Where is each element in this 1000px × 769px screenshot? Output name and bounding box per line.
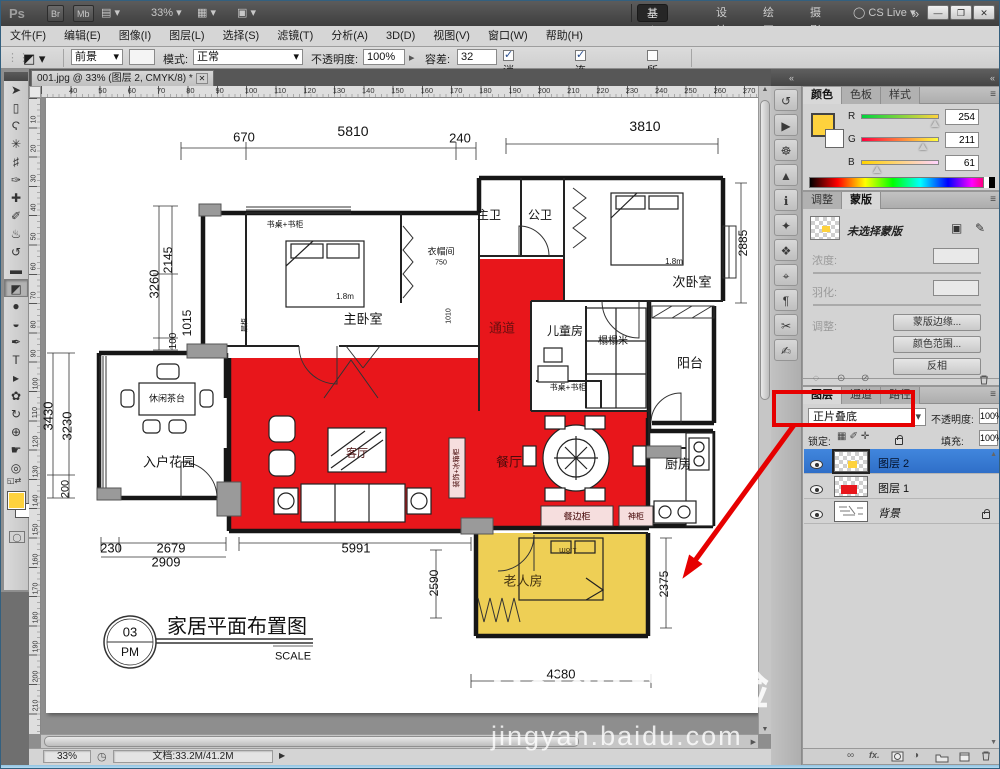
ruler-number: 80 [30,321,37,329]
panel-menu-icon[interactable]: ≡ [990,194,996,205]
opacity-label: 不透明度: [311,51,358,67]
plan-label: 1.8m [665,258,683,266]
masks-panel: 调整蒙版 ≡ 未选择蒙版 ▣ ✎ 浓度: 羽化: 调整: 蒙版边缘... 颜色范… [802,191,1000,386]
horizontal-scrollbar[interactable]: ▶ [41,734,758,748]
visibility-eye-icon[interactable] [810,506,823,524]
b-value-input[interactable]: 61 [945,155,979,171]
scroll-up-icon[interactable]: ▲ [759,86,771,93]
mode-dropdown[interactable]: 正常 ▾ [193,49,303,65]
layer-row-2[interactable]: 图层 2 [804,449,1000,474]
color-panel: 颜色色板样式 ≡ R 254 G 211 B 61 [802,86,1000,191]
menu-item[interactable]: 选择(S) [214,26,269,47]
fill-source-dropdown[interactable]: 前景 ▾ [71,49,123,65]
blur-tool[interactable]: ● [4,297,28,315]
plan-label: 公卫 [528,209,552,221]
app-background [1,592,29,765]
tools-panel: ➤▯Ϛ✳♯✑✚✐♨↺▬◩●◒✒T▸✿↻⊕☛◎ ◱⇄ ◯ [3,71,29,591]
black-swatch[interactable] [989,177,995,188]
tolerance-input[interactable]: 32 [457,49,497,65]
adjustments-panel-icon[interactable]: ✦ [774,214,798,236]
ruler-number: 180 [479,86,492,95]
type-tool[interactable]: T [4,351,28,369]
layer-row-background[interactable]: 背景 [804,499,1000,524]
pen-tool[interactable]: ✒ [4,333,28,351]
fill-label: 填充: [941,433,964,448]
b-channel-label: B [848,157,855,168]
plan-label: 客厅 [346,449,368,460]
r-slider[interactable] [861,114,939,119]
ruler-number: 190 [509,86,522,95]
ruler-left[interactable]: 1020304050607080901001101201301401501601… [29,98,41,734]
plan-label: 5810 [337,124,368,138]
plan-label: 03 [123,626,137,639]
color-panel-tabs: 颜色色板样式 [803,87,1000,104]
layer-thumbnail[interactable] [834,476,868,497]
plan-label: 2145 [162,247,174,274]
density-input[interactable] [933,248,979,264]
status-menu-icon[interactable]: ▶ [279,751,285,760]
ruler-number: 130 [333,86,346,95]
ruler-number: 160 [421,86,434,95]
menu-item[interactable]: 窗口(W) [479,26,537,47]
menu-item[interactable]: 编辑(E) [55,26,110,47]
ruler-number: 190 [32,641,39,653]
add-pixel-mask-icon[interactable]: ▣ [951,221,962,235]
layer-name[interactable]: 背景 [878,505,900,521]
default-colors-icon[interactable]: ◱⇄ [7,476,21,485]
crop-tool[interactable]: ♯ [4,153,28,171]
ruler-number: 180 [32,612,39,624]
b-slider[interactable] [861,160,939,165]
ruler-number: 120 [303,86,316,95]
layer-thumbnail[interactable] [834,451,868,472]
layer-lock-icon [982,506,990,524]
plan-label: 老人房 [503,575,542,588]
plan-label: 2590 [428,570,440,597]
divider [63,49,64,67]
ruler-number: 170 [32,582,39,594]
vertical-scroll-thumb[interactable] [760,100,770,400]
r-value-input[interactable]: 254 [945,109,979,125]
plan-label: 3260 [148,270,161,299]
fill-input[interactable]: 100% [979,430,998,446]
plan-label: 主卫 [477,209,501,221]
panel-tab[interactable]: 蒙版 [842,192,881,209]
info-panel-icon[interactable]: ℹ [774,189,798,211]
foreground-color-swatch[interactable] [7,491,26,510]
lock-label: 锁定: [808,433,831,448]
add-mask-icon[interactable] [891,751,905,763]
ruler-number: 50 [30,233,37,241]
opacity-arrow-icon[interactable]: ▸ [409,51,415,64]
ruler-number: 130 [32,465,39,477]
status-doc-size: 文档:33.2M/41.2M [113,750,273,763]
color-range-button[interactable]: 颜色范围... [893,336,981,353]
mode-label: 模式: [163,51,188,67]
plan-label: 儿童房 [547,325,583,337]
ruler-number: 220 [596,86,609,95]
plan-label: 3230 [61,412,74,441]
eyedropper-tool[interactable]: ✑ [4,171,28,189]
menu-item[interactable]: 分析(A) [322,26,377,47]
styles-panel-icon[interactable]: ❖ [774,239,798,261]
close-button[interactable]: ✕ [973,5,995,20]
workspace-button[interactable]: 基本功能 [637,4,668,22]
panel-tab[interactable]: 颜色 [803,87,842,104]
clone-stamp-tool[interactable]: ♨ [4,225,28,243]
shape-tool[interactable]: ✿ [4,387,28,405]
document-tab-bar: 001.jpg @ 33% (图层 2, CMYK/8) * ✕ [29,69,771,86]
ruler-number: 110 [274,86,286,95]
floor-plan-drawing [41,98,758,734]
plan-label: 厨房 [665,458,691,471]
histogram-panel-icon[interactable]: ▲ [774,164,798,186]
lasso-tool[interactable]: Ϛ [4,117,28,135]
invert-button[interactable]: 反相 [893,358,981,375]
tolerance-label: 容差: [425,51,450,67]
menu-item[interactable]: 滤镜(T) [268,26,322,47]
window-border [1,765,1000,769]
zoom-level-dropdown[interactable]: 33% ▾ [151,5,182,22]
layers-opacity-input[interactable]: 100% [979,408,998,424]
panel-tab[interactable]: 调整 [803,192,842,209]
menu-item[interactable]: 视图(V) [424,26,479,47]
new-layer-icon[interactable] [958,751,971,763]
new-group-icon[interactable] [935,751,949,763]
ruler-number: 40 [30,203,37,211]
ruler-number: 60 [128,86,136,95]
g-slider-marker[interactable] [919,143,927,150]
plan-label: 阳台 [677,357,703,370]
menu-bar: 文件(F)编辑(E)图像(I)图层(L)选择(S)滤镜(T)分析(A)3D(D)… [1,26,1000,47]
clock-icon: ◷ [97,750,107,763]
plan-label: 书桌+书柜 [550,384,587,392]
panel-tab[interactable]: 色板 [842,87,881,104]
brush-tool[interactable]: ✐ [4,207,28,225]
ruler-number: 230 [626,86,639,95]
view-extras-icon[interactable]: ▦ ▾ [197,5,216,22]
dock-header: «« [771,69,1000,86]
panel-scroll-down-icon[interactable]: ▼ [990,739,997,746]
ruler-number: 210 [32,700,39,712]
panel-menu-icon[interactable]: ≡ [990,389,996,400]
ruler-number: 250 [684,86,697,95]
layer-style-icon[interactable]: fx. [869,750,880,760]
workspace-button[interactable]: 摄影 [801,4,830,22]
plan-label: 入户花园 [143,456,195,469]
r-channel-label: R [848,111,855,122]
plan-label: 休闲茶台 [149,395,185,404]
plan-label: 750 [435,260,447,267]
divider [691,49,692,67]
ruler-number: 80 [186,86,194,95]
title-bar: Ps Br Mb ▤ ▾ 33% ▾ ▦ ▾ ▣ ▾ 基本功能设计绘画摄影 » … [1,1,1000,26]
ruler-number: 100 [32,377,39,389]
plan-label: 200 [61,480,72,498]
g-value-input[interactable]: 211 [945,132,979,148]
plan-label: 100 [169,333,179,350]
ruler-number: 90 [216,86,224,95]
vertical-scrollbar[interactable]: ▲▼ [758,86,771,734]
plan-label: 餐厅 [496,456,522,469]
dodge-tool[interactable]: ◒ [4,315,28,333]
ruler-number: 100 [245,86,258,95]
actions-panel-icon[interactable]: ▶ [774,114,798,136]
menu-item[interactable]: 3D(D) [377,26,424,47]
tools-panel-header[interactable] [4,72,28,81]
minimize-button[interactable]: — [927,5,949,20]
ruler-number: 110 [32,407,39,418]
new-adjustment-layer-icon[interactable]: ◑ [913,750,919,761]
layer-name[interactable]: 图层 1 [878,480,909,496]
masks-panel-tabs: 调整蒙版 [803,192,1000,209]
scroll-right-icon[interactable]: ▶ [751,738,756,746]
plan-label: 书桌+书柜 [267,221,304,229]
ruler-number: 40 [69,86,77,95]
ruler-origin[interactable] [29,86,41,98]
load-selection-icon[interactable]: ◌ [813,373,819,384]
visibility-eye-icon[interactable] [810,481,823,499]
scroll-down-icon[interactable]: ▼ [759,726,771,733]
menu-item[interactable]: 图像(I) [110,26,160,47]
mask-edge-button[interactable]: 蒙版边缘... [893,314,981,331]
canvas[interactable]: 6705810240381032602145101510034303230200… [41,98,758,734]
ruler-number: 160 [32,553,39,565]
paint-bucket-icon[interactable]: ◩ ▾ [23,51,45,67]
r-slider-marker[interactable] [931,120,939,127]
ruler-number: 30 [30,174,37,182]
document-status-bar: 33% ◷ 文档:33.2M/41.2M ▶ [29,748,771,765]
plan-label: 次卧室 [672,276,711,289]
plan-label: 240 [449,132,471,145]
plan-label: 2909 [152,556,181,569]
marquee-tool[interactable]: ▯ [4,99,28,117]
g-slider[interactable] [861,137,939,142]
status-zoom-field[interactable]: 33% [43,750,91,763]
apply-mask-icon[interactable]: ⊙ [837,373,845,384]
cs-live-button[interactable]: ◯ CS Live ▾ [853,5,915,22]
path-selection-tool[interactable]: ▸ [4,369,28,387]
plan-label: 5991 [342,542,371,555]
photoshop-window: Ps Br Mb ▤ ▾ 33% ▾ ▦ ▾ ▣ ▾ 基本功能设计绘画摄影 » … [0,0,1000,769]
ruler-number: 260 [714,86,727,95]
layers-footer: ∞ fx. ◑ [803,748,1000,764]
plan-label: 榻榻米 [598,337,628,347]
panel-menu-icon[interactable]: ≡ [990,89,996,100]
plan-label: 通道 [489,322,515,335]
paragraph-panel-icon[interactable]: ¶ [774,289,798,311]
feather-slider[interactable] [813,304,981,306]
layer-thumbnail[interactable] [834,501,868,522]
link-layers-icon[interactable]: ∞ [847,750,854,761]
layers-opacity-label: 不透明度: [931,411,974,426]
feather-label: 羽化: [812,284,837,300]
lock-all-icon[interactable] [895,432,903,450]
background-swatch[interactable] [825,129,844,148]
checkbox-icon [575,50,586,61]
plan-label: 3810 [629,119,660,133]
hand-tool[interactable]: ☛ [4,441,28,459]
ruler-number: 20 [30,145,37,153]
density-label: 浓度: [812,252,837,268]
3d-rotate-tool[interactable]: ↻ [4,405,28,423]
plan-label: 3430 [42,402,55,431]
ruler-number: 240 [655,86,668,95]
eraser-tool[interactable]: ▬ [4,261,28,279]
lock-icons[interactable]: ▦✐✛ [837,431,872,442]
plan-label: 2375 [658,571,670,598]
ruler-number: 120 [32,436,39,448]
ruler-number: 150 [32,524,39,536]
plan-label: 670 [233,131,255,144]
zoom-tool[interactable]: ◎ [4,459,28,477]
ruler-number: 140 [32,495,39,507]
notes-panel-icon[interactable]: ✍ [774,339,798,361]
ruler-number: 200 [538,86,551,95]
layers-panel: 图层通道路径 ≡ 正片叠底▾ 不透明度: 100% 锁定: ▦✐✛ 填充: 10… [802,386,1000,765]
plan-label: 4380 [547,668,576,681]
ruler-number: 170 [450,86,463,95]
history-panel-icon[interactable]: ↺ [774,89,798,111]
plan-label: 餐边柜 [563,513,590,522]
collapse-dock-icon[interactable]: « [789,73,794,83]
annotation-highlight-box [772,390,915,427]
disable-mask-icon[interactable]: ⊘ [861,373,869,384]
ruler-top[interactable]: 4050607080901001101201301401501601701801… [41,86,758,98]
paint-bucket-tool[interactable]: ◩ [4,279,28,297]
tools-list: ➤▯Ϛ✳♯✑✚✐♨↺▬◩●◒✒T▸✿↻⊕☛◎ [4,81,28,477]
layer-row-1[interactable]: 图层 1 [804,474,1000,499]
ps-logo: Ps [9,5,25,22]
tool-presets-panel-icon[interactable]: ✂ [774,314,798,336]
plan-label: 1.8m [559,546,577,554]
options-bar: ⋮⋮ ◩ ▾ 前景 ▾ 模式: 正常 ▾ 不透明度: 100% ▸ 容差: 32… [1,47,1000,69]
density-slider[interactable] [813,272,981,274]
tab-close-icon[interactable]: ✕ [196,73,209,84]
screen-mode-icon[interactable]: ▣ ▾ [237,5,256,22]
menu-item[interactable]: 文件(F) [1,26,55,47]
ruler-number: 90 [30,350,37,358]
workspace-button[interactable]: 绘画 [754,4,783,22]
arrange-documents-icon[interactable]: ▤ ▾ [101,5,120,22]
refine-label: 调整: [812,318,837,334]
mask-status-text: 未选择蒙版 [847,223,902,239]
trash-icon[interactable] [978,374,990,386]
restore-button[interactable]: ❐ [950,5,972,20]
layer-name[interactable]: 图层 2 [878,455,909,471]
checkbox-icon [647,50,658,61]
ruler-number: 270 [743,86,756,95]
visibility-eye-icon[interactable] [810,456,823,474]
pattern-swatch[interactable] [129,49,155,65]
magic-wand-tool[interactable]: ✳ [4,135,28,153]
mask-thumb-content [822,226,830,232]
plan-label: 神柜 [628,513,644,521]
mini-bridge-button[interactable]: Mb [73,5,94,22]
workspace-button[interactable]: 设计 [707,4,736,22]
plan-label: 装饰+冰箱柜 [454,448,461,487]
mask-thumbnail [810,216,840,240]
ruler-number: 200 [32,670,39,682]
quick-mask-button[interactable]: ◯ [9,531,25,543]
history-brush-tool[interactable]: ↺ [4,243,28,261]
checkbox-icon [503,50,514,61]
plan-label: 家居平面布置图 [167,617,307,637]
thumb-red-blob [841,485,857,494]
document-tab[interactable]: 001.jpg @ 33% (图层 2, CMYK/8) * ✕ [31,70,214,86]
bridge-button[interactable]: Br [47,5,64,22]
add-vector-mask-icon[interactable]: ✎ [975,221,985,235]
opacity-input[interactable]: 100% [363,49,405,65]
plan-label: 230 [100,542,122,555]
navigator-panel-icon[interactable]: ☸ [774,139,798,161]
thumb-yellow-blob [848,461,857,468]
trash-icon[interactable] [980,750,992,762]
color-spectrum-ramp[interactable] [809,177,995,188]
plan-label: 1015 [181,310,193,337]
feather-input[interactable] [933,280,979,296]
plan-label: 2679 [157,542,186,555]
ruler-number: 60 [30,262,37,270]
plan-label: 主卧室 [343,313,382,326]
healing-brush-tool[interactable]: ✚ [4,189,28,207]
divider [631,4,632,22]
plan-label: SCALE [275,652,311,663]
clone-source-panel-icon[interactable]: ⌖ [774,264,798,286]
ruler-number: 10 [30,116,37,124]
plan-label: 1.8m [336,293,354,301]
ruler-number: 150 [391,86,404,95]
plan-label: 1010 [446,308,453,324]
panel-tab[interactable]: 样式 [881,87,920,104]
panel-scroll-up-icon[interactable]: ▲ [990,451,997,458]
plan-label: 层柜 [242,318,249,332]
plan-label: PM [121,646,139,658]
collapse-panels-icon[interactable]: « [990,73,995,83]
ruler-number: 210 [567,86,580,95]
ruler-number: 50 [98,86,106,95]
ruler-number: 140 [362,86,375,95]
g-channel-label: G [848,134,856,145]
ruler-number: 70 [30,291,37,299]
plan-label: 衣帽间 [427,248,454,257]
menu-item[interactable]: 帮助(H) [537,26,592,47]
move-tool[interactable]: ➤ [4,81,28,99]
ruler-number: 70 [157,86,165,95]
menu-item[interactable]: 图层(L) [160,26,213,47]
b-slider-marker[interactable] [873,166,881,173]
plan-label: 2885 [737,230,749,257]
3d-orbit-tool[interactable]: ⊕ [4,423,28,441]
horizontal-scroll-thumb[interactable] [44,736,579,747]
